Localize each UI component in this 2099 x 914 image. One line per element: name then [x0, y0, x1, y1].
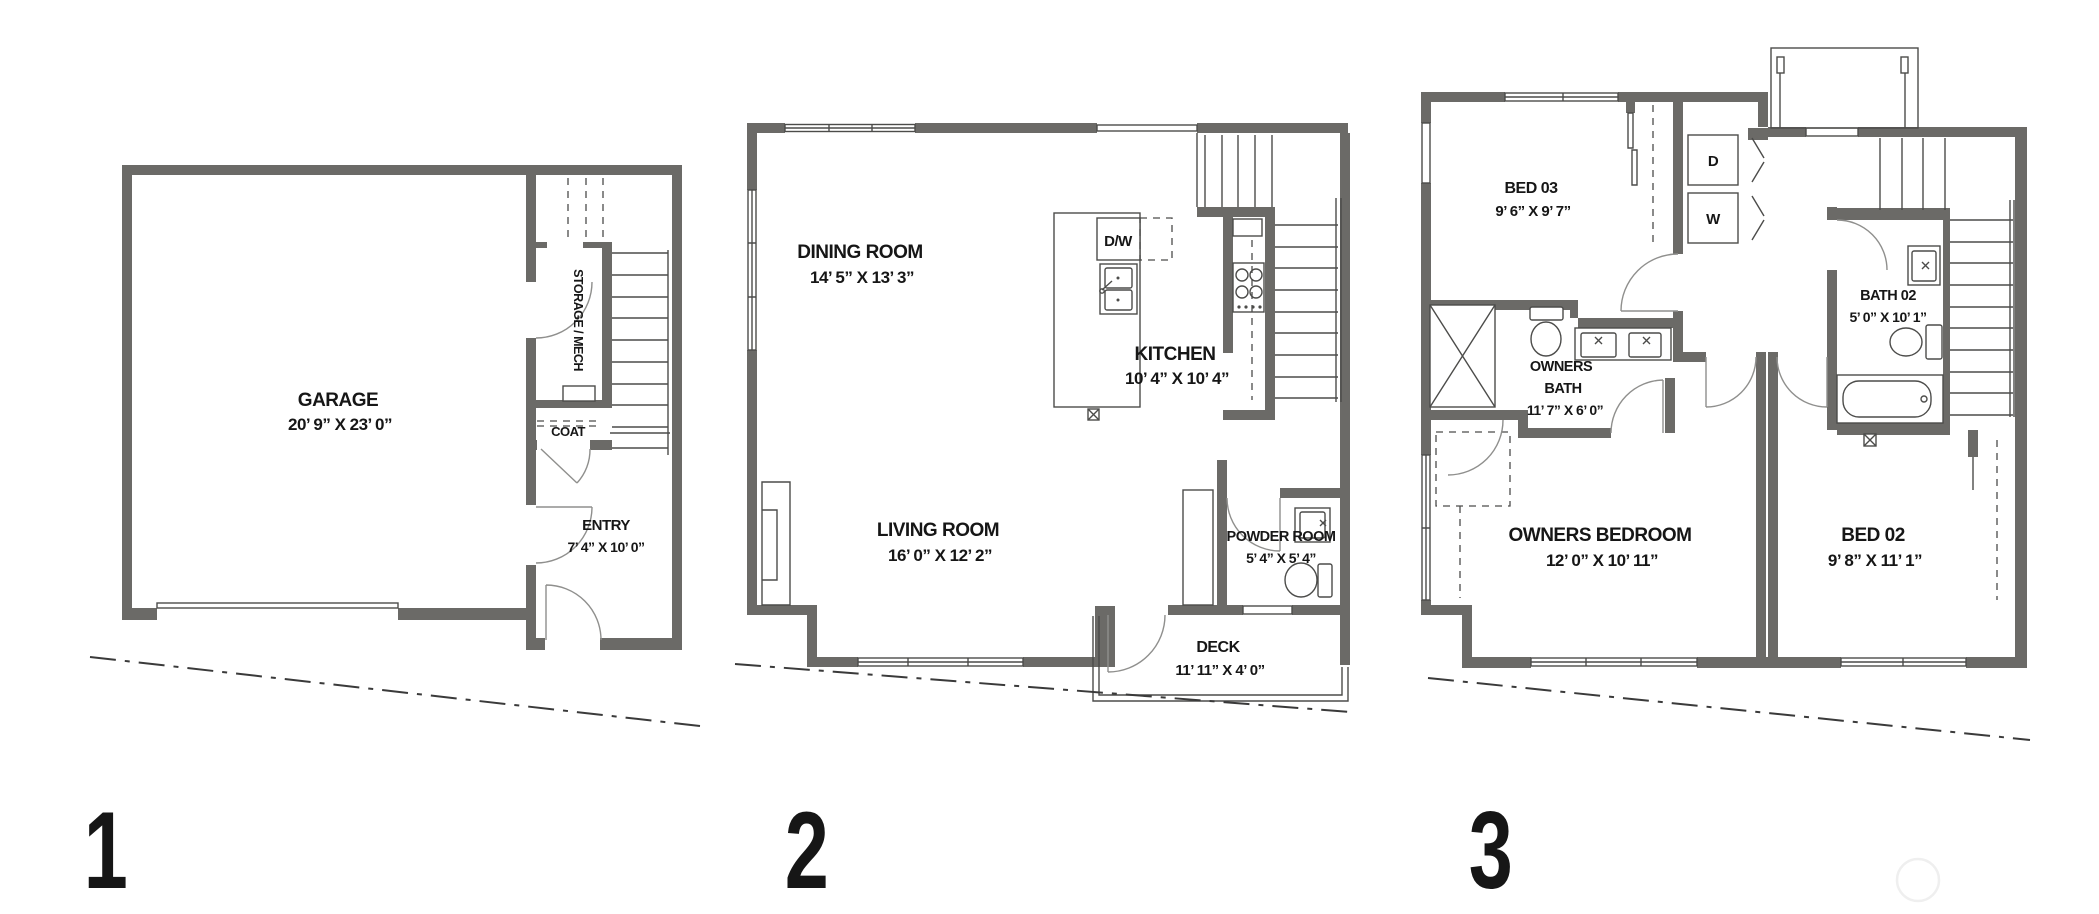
floor1-stair-overhead-dashes	[568, 178, 603, 242]
deck-door	[1108, 615, 1165, 672]
owners-bath-label-1: OWNERS	[1530, 359, 1593, 375]
owners-toilet-icon	[1530, 307, 1563, 356]
bed03-dims: 9’ 6” X 9’ 7”	[1495, 203, 1570, 220]
dining-room-dims: 14’ 5” X 13’ 3”	[810, 268, 914, 287]
floor-3-number: 3	[1469, 789, 1512, 912]
owners-bedroom-label: OWNERS BEDROOM	[1509, 525, 1692, 546]
floor1-plan: GARAGE 20’ 9” X 23’ 0” STORAGE / MECH CO…	[84, 165, 700, 912]
living-room-label: LIVING ROOM	[877, 520, 999, 541]
bath02-door	[1837, 220, 1887, 270]
deck-rail	[1093, 616, 1348, 701]
bed02-dims: 9’ 8” X 11’ 1”	[1828, 551, 1922, 570]
kitchen-label: KITCHEN	[1135, 344, 1216, 365]
shower-icon	[1430, 305, 1495, 407]
owners-bedroom-door	[1706, 357, 1756, 407]
floor3-property-line	[1428, 678, 2030, 740]
dryer-label: D	[1708, 153, 1719, 170]
owners-closet-door	[1448, 420, 1503, 475]
fireplace-nook	[762, 482, 790, 605]
garage-label: GARAGE	[298, 390, 378, 411]
front-door	[546, 585, 601, 640]
floor-1-number: 1	[84, 789, 127, 912]
laundry-bifold-doors	[1752, 138, 1764, 240]
garage-door	[157, 603, 398, 608]
kitchen-cabinet	[1233, 219, 1262, 236]
floorplan-drawing: GARAGE 20’ 9” X 23’ 0” STORAGE / MECH CO…	[0, 0, 2099, 914]
powder-toilet-icon	[1285, 563, 1332, 597]
floor1-walls	[122, 165, 682, 650]
floor-drain-icon	[1088, 409, 1099, 420]
owners-bedroom-dims: 12’ 0” X 10’ 11”	[1546, 551, 1658, 570]
dishwasher-label: D/W	[1104, 233, 1133, 250]
powder-room-dims: 5’ 4” X 5’ 4”	[1246, 550, 1316, 566]
bed02-label: BED 02	[1841, 525, 1905, 546]
bathtub-icon	[1837, 375, 1943, 423]
washer-label: W	[1706, 211, 1721, 228]
owners-bath-door	[1611, 380, 1663, 433]
coat-entry-door	[541, 449, 590, 483]
floor1-property-line	[90, 657, 700, 726]
floor2-plan: DINING ROOM 14’ 5” X 13’ 3” D/W KITCHEN …	[735, 123, 1350, 912]
stove-icon	[1233, 263, 1264, 312]
bath02-toilet-icon	[1890, 325, 1942, 359]
entry-label: ENTRY	[582, 517, 630, 534]
owners-closet-dash	[1436, 432, 1510, 598]
dining-room-label: DINING ROOM	[797, 242, 922, 263]
living-room-dims: 16’ 0” X 12’ 2”	[888, 546, 992, 565]
deck-dims: 11’ 11” X 4’ 0”	[1175, 662, 1264, 679]
watermark-circle	[1897, 859, 1939, 901]
laundry-chute-icon	[1864, 434, 1876, 446]
bath02-sink-icon	[1908, 246, 1940, 285]
refrigerator-dashed-box	[1140, 218, 1172, 260]
floorplan-sheet: GARAGE 20’ 9” X 23’ 0” STORAGE / MECH CO…	[0, 0, 2099, 914]
bed03-closet-panels	[1628, 113, 1637, 185]
bed03-label: BED 03	[1504, 180, 1558, 197]
owners-vanity-icon	[1575, 328, 1671, 360]
skylight-icon	[1771, 48, 1918, 128]
garage-dims: 20’ 9” X 23’ 0”	[288, 415, 392, 434]
coat-label: COAT	[551, 424, 585, 439]
floor-2-number: 2	[785, 789, 828, 912]
powder-room-label: POWDER ROOM	[1227, 529, 1336, 545]
floor2-walls	[747, 123, 1350, 667]
floor1-stair-treads	[610, 250, 670, 455]
entry-dims: 7’ 4” X 10’ 0”	[567, 539, 644, 555]
water-heater	[563, 386, 595, 401]
kitchen-sink-icon	[1100, 264, 1137, 314]
owners-bath-dims: 11’ 7” X 6’ 0”	[1527, 402, 1603, 418]
owners-bath-label-2: BATH	[1544, 381, 1581, 397]
storage-mech-label: STORAGE / MECH	[571, 269, 585, 371]
bed03-door	[1621, 254, 1678, 311]
floor3-plan: BED 03 9’ 6” X 9’ 7” D W BATH 02 5’ 0” X…	[1421, 48, 2030, 912]
deck-label: DECK	[1196, 639, 1240, 656]
hall-closet	[1183, 490, 1213, 605]
bath02-label: BATH 02	[1860, 288, 1916, 304]
bath02-dims: 5’ 0” X 10’ 1”	[1849, 309, 1926, 325]
kitchen-dims: 10’ 4” X 10’ 4”	[1125, 369, 1229, 388]
bed02-door	[1777, 357, 1827, 407]
